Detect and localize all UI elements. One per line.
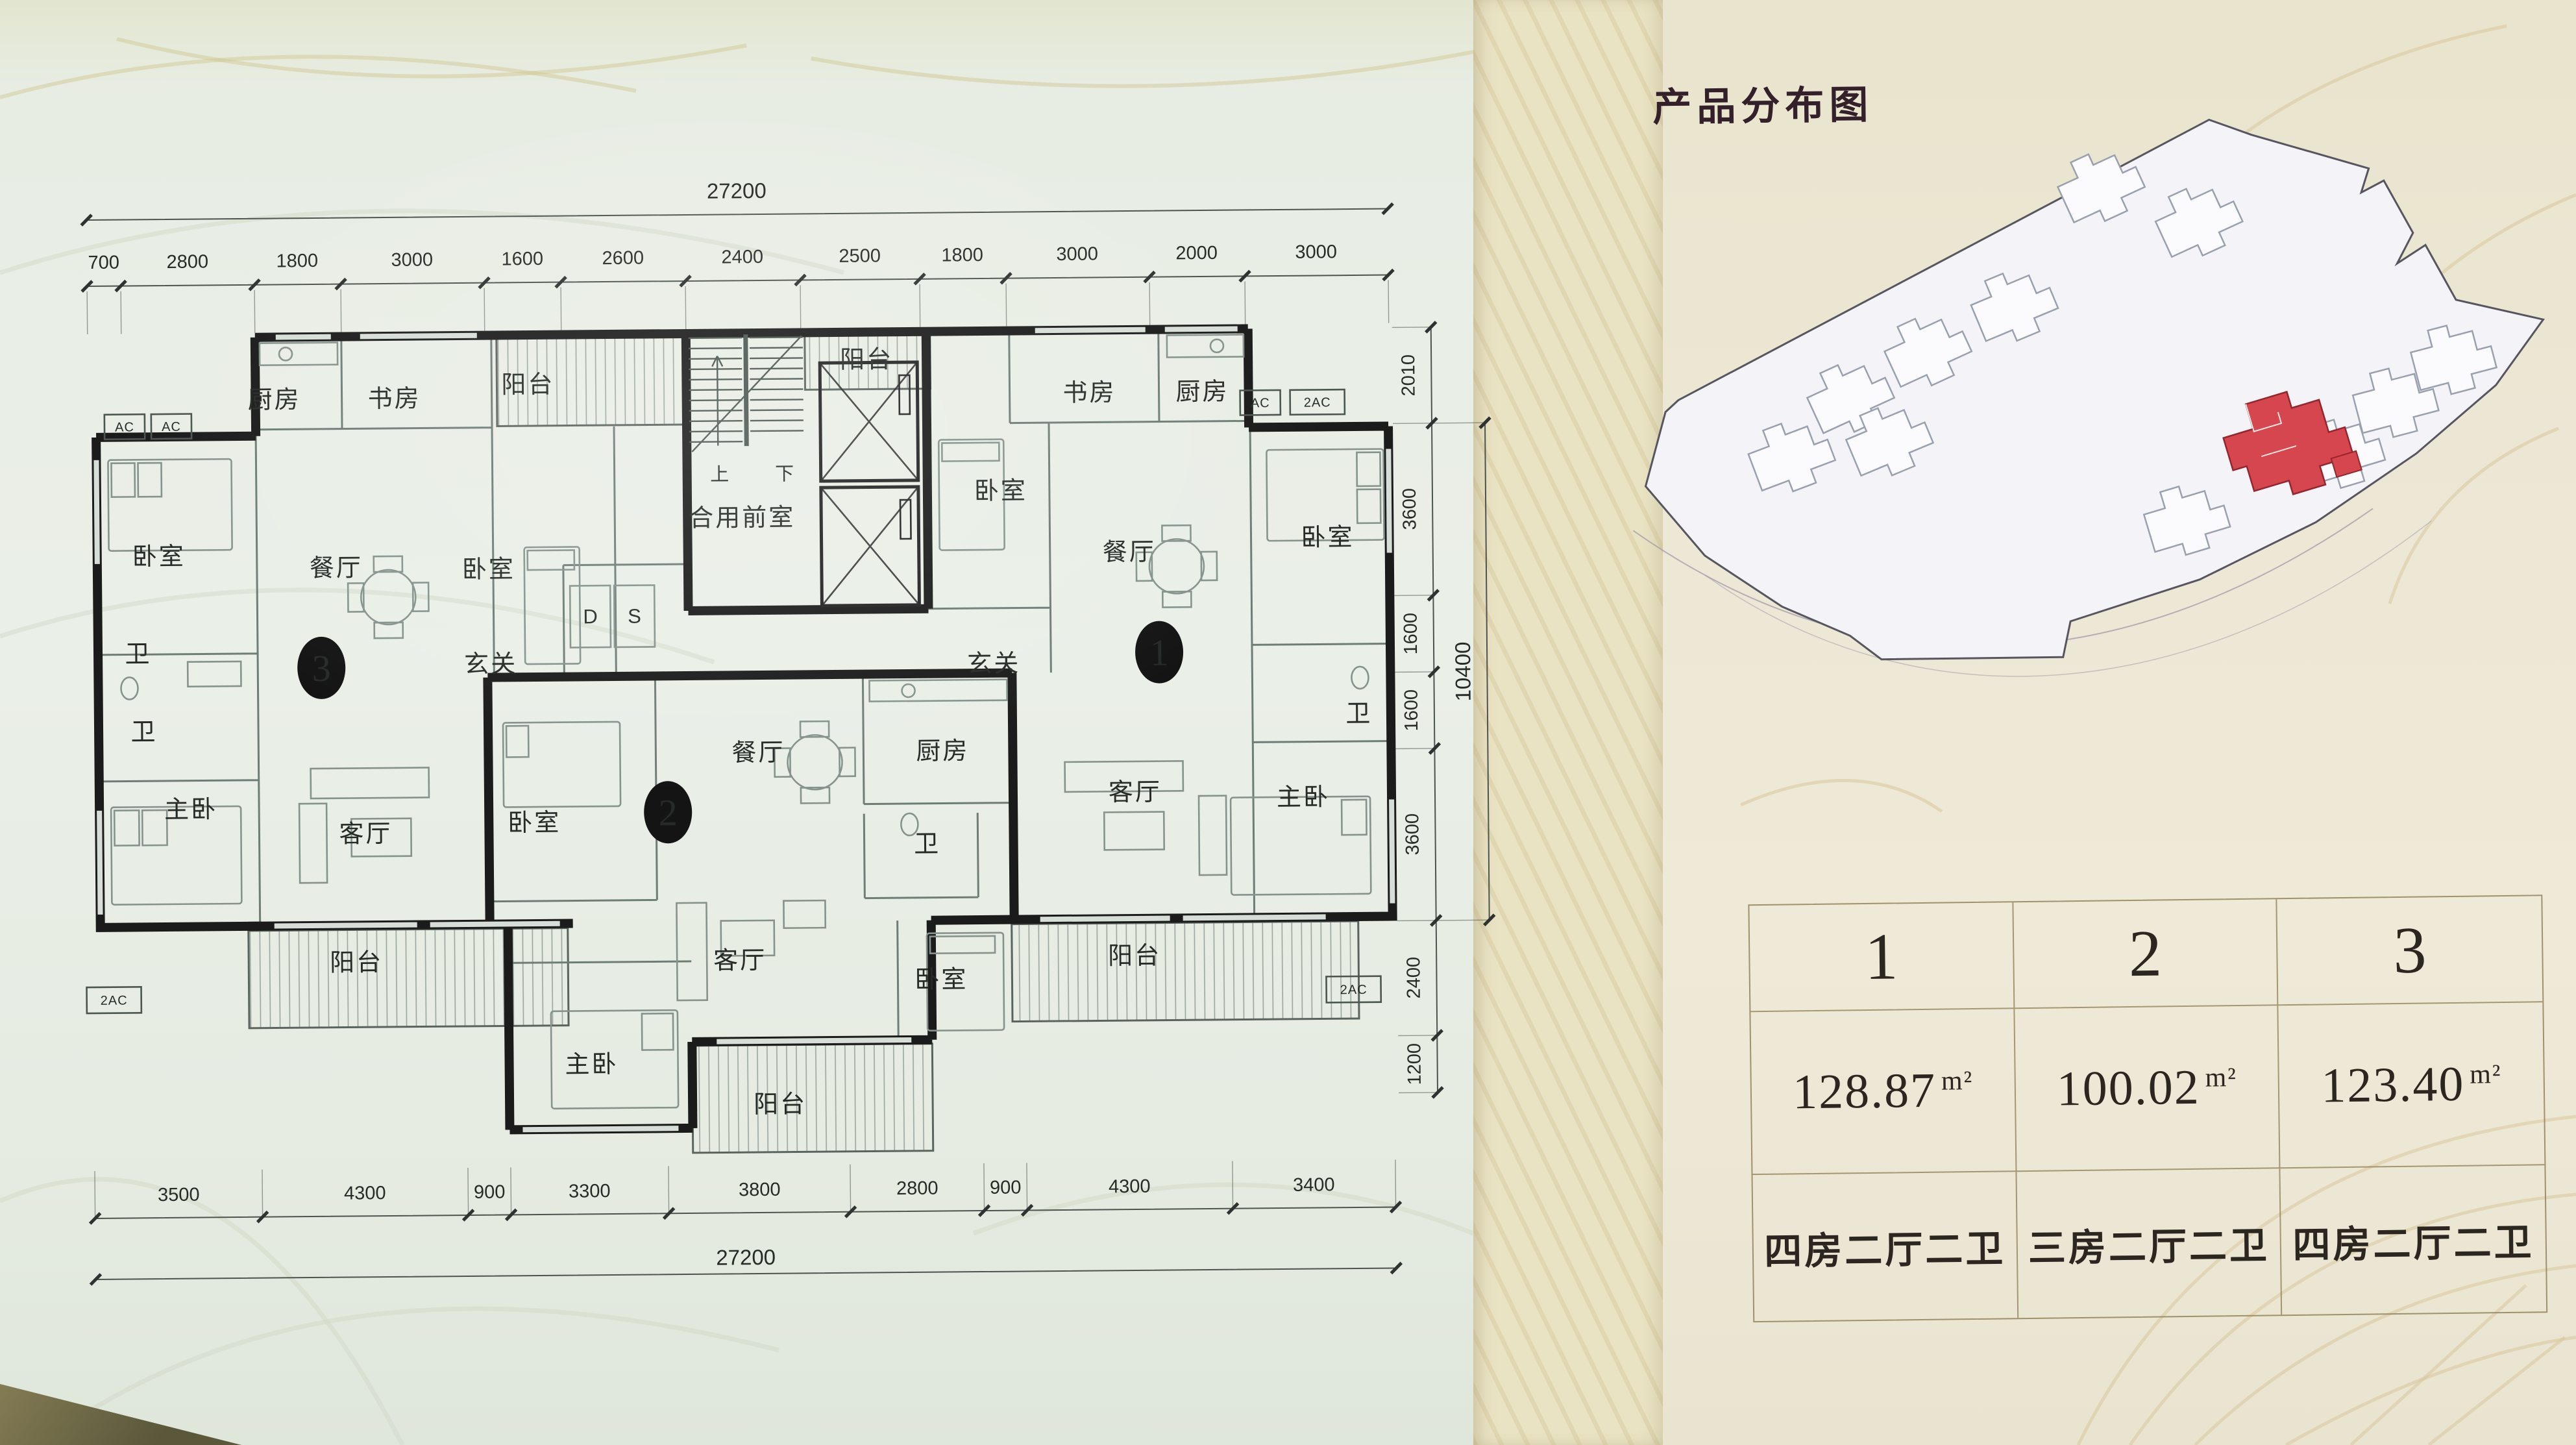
svg-text:2010: 2010 [1398, 354, 1419, 397]
unit-2-number: 2 [658, 791, 678, 834]
area-unit-2: m² [2205, 1063, 2237, 1093]
label-closet-d: D [583, 605, 598, 628]
label-study-u3: 书房 [367, 386, 421, 414]
table-cell-unit1-area: 128.87m² [1750, 1009, 2017, 1175]
label-master-u2: 主卧 [565, 1051, 618, 1079]
svg-text:700: 700 [88, 253, 119, 273]
label-bedroom-u2-left: 卧室 [508, 809, 561, 837]
label-ac-1: AC [115, 420, 134, 434]
label-master-u1: 主卧 [1277, 784, 1330, 811]
label-bath-u3-1: 卫 [125, 641, 151, 668]
svg-text:3400: 3400 [1293, 1174, 1335, 1196]
label-2ac-2: 2AC [101, 994, 128, 1008]
svg-text:2400: 2400 [721, 247, 763, 268]
svg-text:3800: 3800 [739, 1179, 781, 1201]
svg-text:900: 900 [474, 1181, 506, 1202]
label-closet-s: S [628, 605, 641, 628]
product-distribution-panel: 产品分布图 [1464, 0, 2576, 1445]
label-balcony-u3-bottom: 阳台 [330, 949, 383, 977]
area-unit-1: m² [1941, 1066, 1974, 1096]
table-cell-unit3-layout: 四房二厅二卫 [2281, 1165, 2546, 1315]
label-bedroom-u3-left: 卧室 [132, 543, 186, 571]
svg-text:3600: 3600 [1402, 813, 1423, 856]
label-balcony-u2: 阳台 [754, 1091, 807, 1118]
label-dining-u2: 餐厅 [731, 739, 785, 767]
table-cell-unit2-layout: 三房二厅二卫 [2017, 1168, 2282, 1318]
label-2ac-1: 2AC [1304, 395, 1331, 410]
label-balcony-core-top: 阳台 [840, 346, 893, 374]
label-ac-2: AC [162, 420, 181, 434]
svg-text:2600: 2600 [602, 248, 644, 269]
label-bedroom-u3-mid: 卧室 [462, 556, 515, 584]
dim-top-total: 27200 [707, 179, 767, 203]
label-bath-u2: 卫 [914, 831, 940, 858]
label-kitchen-u3: 厨房 [247, 386, 301, 414]
svg-text:3600: 3600 [1399, 488, 1421, 530]
label-living-u3: 客厅 [339, 821, 392, 848]
label-shared-lobby: 合用前室 [689, 504, 795, 532]
unit-1-number: 1 [1149, 631, 1169, 673]
label-dining-u3: 餐厅 [310, 554, 363, 582]
label-kitchen-u2: 厨房 [916, 737, 969, 765]
label-study-u1: 书房 [1062, 379, 1116, 407]
label-2ac-3: 2AC [1340, 983, 1368, 997]
svg-text:3500: 3500 [158, 1185, 200, 1206]
svg-text:2800: 2800 [896, 1178, 938, 1200]
label-entry-u1: 玄关 [967, 650, 1020, 678]
svg-text:2400: 2400 [1403, 957, 1425, 999]
site-map [1602, 104, 2570, 687]
label-ac-3: AC [1251, 396, 1270, 410]
label-living-u1: 客厅 [1109, 779, 1162, 807]
label-bedroom-u1-right: 卧室 [1301, 524, 1354, 552]
photo-of-floorplan-board: 27200 700 2800 1800 3000 1600 2600 2400 … [0, 0, 2576, 1445]
svg-text:900: 900 [990, 1178, 1022, 1198]
label-bath-u3-2: 卫 [130, 719, 157, 746]
balconies [243, 328, 1360, 1157]
svg-text:3000: 3000 [1056, 243, 1098, 265]
label-balcony-u3-top: 阳台 [501, 371, 554, 399]
label-bedroom-u1-mid: 卧室 [974, 477, 1027, 505]
label-bedroom-u2-right: 卧室 [914, 966, 968, 994]
svg-text:1600: 1600 [1401, 689, 1423, 732]
label-kitchen-u1: 厨房 [1175, 378, 1229, 406]
table-cell-unit2-no: 2 [2013, 899, 2279, 1009]
label-dining-u1: 餐厅 [1103, 539, 1156, 567]
label-master-u3: 主卧 [164, 796, 217, 824]
svg-text:2000: 2000 [1175, 243, 1218, 264]
svg-text:1800: 1800 [941, 245, 983, 266]
table-cell-unit3-area: 123.40m² [2279, 1002, 2545, 1168]
label-stairs-up: 上 [710, 464, 729, 485]
label-entry-u3: 玄关 [464, 650, 517, 678]
dim-bottom-total: 27200 [716, 1245, 776, 1270]
label-balcony-u1-bottom: 阳台 [1108, 943, 1161, 970]
svg-text:3300: 3300 [569, 1181, 611, 1202]
svg-text:3000: 3000 [391, 249, 433, 271]
table-cell-unit3-no: 3 [2277, 896, 2543, 1006]
label-bath-u1: 卫 [1345, 700, 1372, 728]
table-cell-unit1-no: 1 [1749, 902, 2015, 1012]
label-living-u2: 客厅 [713, 947, 767, 975]
floor-plan: 27200 700 2800 1800 3000 1600 2600 2400 … [0, 0, 1525, 1445]
svg-text:2800: 2800 [166, 251, 208, 273]
dining-table-unit2 [774, 721, 855, 804]
svg-text:1800: 1800 [276, 251, 318, 272]
unit-spec-table: 1 2 3 128.87m² 100.02m² 123.40m² 四房二厅二卫 … [1748, 895, 2547, 1322]
area-unit-3: m² [2470, 1059, 2502, 1090]
stairs [689, 334, 804, 452]
svg-text:2500: 2500 [839, 245, 881, 267]
svg-text:4300: 4300 [1109, 1176, 1151, 1198]
svg-text:1600: 1600 [501, 249, 543, 270]
svg-text:1600: 1600 [1401, 613, 1422, 655]
dining-table-unit1 [1136, 525, 1217, 608]
svg-text:3000: 3000 [1295, 241, 1337, 263]
table-cell-unit2-area: 100.02m² [2015, 1006, 2281, 1172]
unit-3-number: 3 [312, 647, 331, 689]
svg-text:4300: 4300 [344, 1183, 386, 1204]
elevator-shafts [820, 362, 919, 606]
svg-text:1200: 1200 [1404, 1043, 1425, 1085]
label-stairs-down: 下 [775, 464, 794, 485]
table-cell-unit1-layout: 四房二厅二卫 [1752, 1172, 2018, 1321]
dim-right-total: 10400 [1451, 641, 1475, 701]
